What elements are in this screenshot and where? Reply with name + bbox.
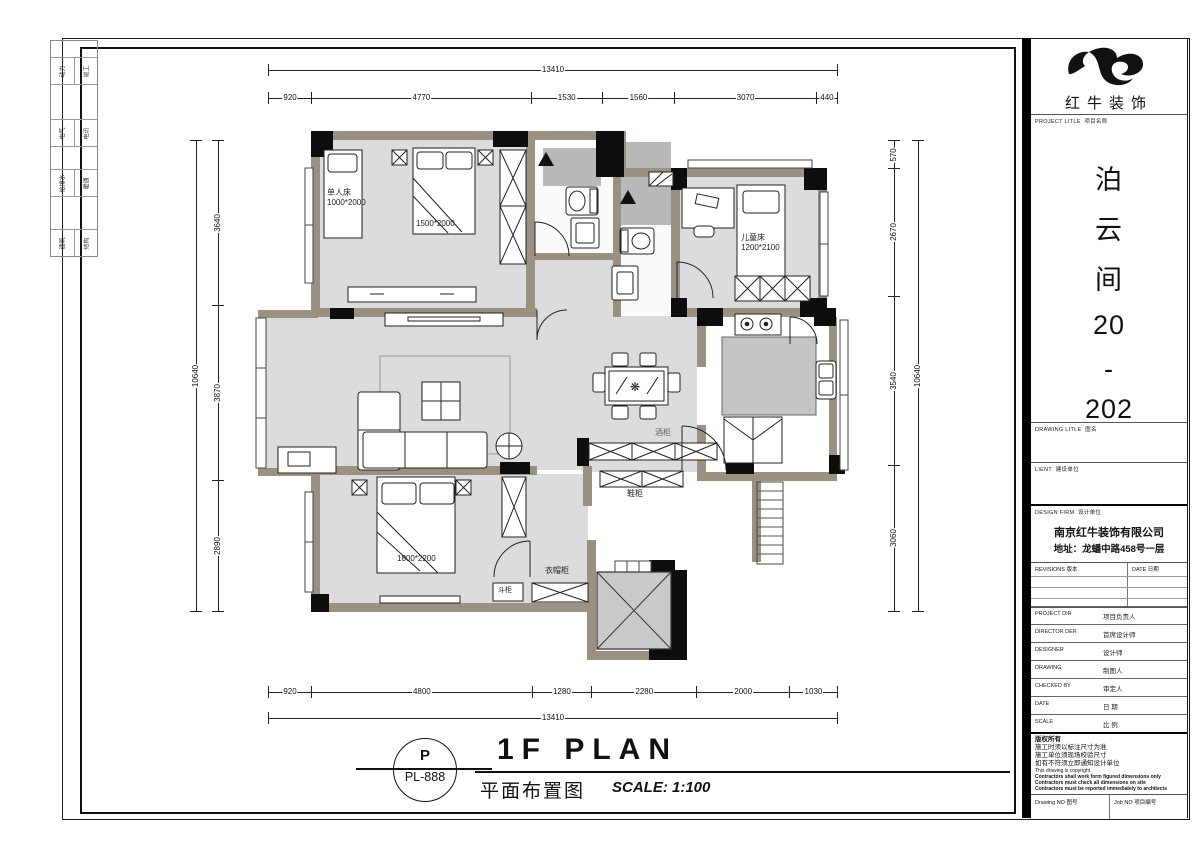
titleblock-row: DIRECTOR DER首席设计师	[1031, 624, 1187, 643]
tv	[408, 317, 480, 321]
dim-top-total: 13410	[268, 64, 838, 76]
dim-bottom-total: 13410	[268, 712, 838, 724]
drawing-no-label: Drawing NO 图号	[1035, 798, 1078, 806]
revisions-header: REVISIONS 版本	[1035, 565, 1078, 573]
pillow	[743, 191, 779, 213]
pillow	[446, 152, 472, 169]
cabinet-screen	[288, 452, 310, 466]
pillow	[382, 483, 416, 504]
toilet-tank	[621, 230, 628, 252]
master-bed-size-label: 1800*2200	[397, 554, 436, 564]
revisions-row-line	[1031, 587, 1187, 588]
divider	[1031, 462, 1187, 463]
dimension-segment: 3640	[212, 140, 224, 305]
dimension-segment: 1530	[531, 92, 602, 104]
dining-chair	[640, 406, 656, 419]
titleblock-row: DESIGNER设计师	[1031, 642, 1187, 661]
titleblock-row: CHECKED BY审定人	[1031, 678, 1187, 697]
sheet-title-zh: 平面布置图	[480, 776, 585, 803]
logo-text: 红牛装饰	[1031, 92, 1187, 113]
title-underline	[475, 771, 1010, 773]
divider	[1031, 422, 1187, 423]
chandelier-icon: ❋	[630, 380, 640, 394]
copyright-line: 如有不符须立即通知设计单位	[1035, 760, 1183, 768]
toilet-bowl	[632, 233, 650, 249]
design-firm-address: 地址：龙蟠中路458号一层	[1031, 541, 1187, 555]
dining-chair	[640, 353, 656, 366]
titleblock-row: SCALE比 例	[1031, 714, 1187, 733]
sink-basin	[576, 223, 594, 243]
thick-divider	[1031, 732, 1187, 734]
dimension-segment: 440	[816, 92, 838, 104]
dimension-segment: 570	[888, 140, 900, 168]
pillow	[420, 483, 454, 504]
sink-basin	[617, 272, 633, 294]
dining-chair	[612, 353, 628, 366]
dimension-segment: 3540	[888, 296, 900, 465]
thick-divider	[1031, 504, 1187, 506]
dim-right-total: 10640	[912, 140, 924, 612]
copyright-line: 施工时须以标注尺寸为准	[1035, 744, 1183, 752]
dimension-segment: 3870	[212, 305, 224, 480]
project-name-char: 泊	[1031, 158, 1187, 197]
dining-chair	[668, 373, 680, 392]
dim-left-total: 10640	[190, 140, 202, 612]
project-title-caption: PROJECT LITLE 项目名称	[1035, 117, 1108, 125]
job-no-label: Job NO 项目编号	[1114, 798, 1156, 806]
desk	[682, 188, 734, 228]
revisions-row-line	[1031, 598, 1187, 599]
title-block: 红牛装饰 PROJECT LITLE 项目名称 泊 云 间 20 - 202 D…	[1031, 38, 1188, 818]
pillow	[328, 154, 357, 172]
revisions-table: REVISIONS 版本 DATE 日期	[1031, 562, 1187, 608]
dim-right-chain: 570267035403060	[888, 140, 900, 612]
toilet-tank	[590, 189, 597, 213]
project-name-char: 间	[1031, 258, 1187, 297]
pillow	[417, 152, 443, 169]
bubble-divider-line	[356, 768, 492, 770]
sheet-scale: SCALE: 1:100	[612, 779, 710, 796]
bubble-code-bottom: PL-888	[394, 770, 456, 784]
dimension-segment: 920	[268, 686, 311, 698]
single-bed-label: 单人床1000*2000	[327, 188, 366, 207]
dimension-segment: 13410	[268, 712, 838, 724]
dimension-segment: 2670	[888, 168, 900, 296]
elevator-shaft	[597, 572, 671, 649]
wine-cabinet-label: 酒柜	[655, 428, 671, 438]
chest-cabinet-label: 斗柜	[498, 587, 512, 595]
dining-chair	[612, 406, 628, 419]
cloak-cabinet-label: 衣帽柜	[545, 566, 569, 576]
project-name-char: 202	[1031, 394, 1187, 425]
project-name-char: -	[1031, 354, 1187, 385]
dimension-segment: 3060	[888, 465, 900, 612]
dimension-segment: 4770	[311, 92, 531, 104]
copyright-block: 版权所有 施工时须以标注尺寸为准 施工单位须现场校验尺寸 如有不符须立即通知设计…	[1035, 736, 1183, 792]
double-bed-size-label: 1500*2000	[416, 219, 455, 229]
project-name-char: 云	[1031, 208, 1187, 247]
dimension-segment: 3070	[674, 92, 816, 104]
desk-chair	[694, 226, 714, 237]
dimension-segment: 10640	[190, 140, 202, 612]
bubble-code-top: P	[394, 747, 456, 764]
dimension-segment: 4800	[311, 686, 532, 698]
divider	[1031, 114, 1187, 115]
toilet-bowl	[569, 191, 585, 211]
dimension-segment: 1280	[532, 686, 592, 698]
kitchen-island	[722, 337, 816, 415]
dimension-segment: 10640	[912, 140, 924, 612]
date-header: DATE 日期	[1132, 565, 1159, 573]
titleblock-row: PROJECT DIR项目负责人	[1031, 606, 1187, 625]
bench	[348, 287, 476, 302]
dimension-segment: 2280	[591, 686, 696, 698]
dimension-segment: 920	[268, 92, 311, 104]
sofa	[363, 432, 487, 468]
dimension-segment: 2000	[696, 686, 788, 698]
number-row: Drawing NO 图号 Job NO 项目编号	[1031, 794, 1187, 819]
dimension-segment: 1560	[602, 92, 674, 104]
kids-bed-label: 儿童床1200*2100	[741, 233, 780, 252]
number-col-divider	[1109, 795, 1110, 819]
dimension-segment: 13410	[268, 64, 838, 76]
dimension-segment: 2890	[212, 480, 224, 612]
drawing-sheet: { "brand": { "logo_name": "redbull-swoos…	[0, 0, 1200, 848]
copyright-line-en: Contractors must be reported immediately…	[1035, 786, 1183, 792]
dim-top-chain: 9204770153015603070440	[268, 92, 838, 104]
redbull-logo-icon	[1059, 44, 1159, 96]
design-firm-name: 南京红牛装饰有限公司	[1031, 524, 1187, 540]
copyright-line: 版权所有	[1035, 736, 1183, 744]
drawing-number-bubble: P PL-888	[393, 738, 457, 802]
titleblock-row: DRAWING制图人	[1031, 660, 1187, 679]
drawing-title-caption: DRAWING LITLE 图名	[1035, 425, 1097, 433]
dining-chair	[593, 373, 605, 392]
dimension-segment: 1030	[789, 686, 838, 698]
bench	[380, 596, 460, 603]
dim-bottom-chain: 92048001280228020001030	[268, 686, 838, 698]
copyright-line: 施工单位须现场校验尺寸	[1035, 752, 1183, 760]
project-name-char: 20	[1031, 310, 1187, 341]
sheet-title-en: 1F PLAN	[497, 733, 678, 767]
design-firm-caption: DESIGN FIRM 设计单位	[1035, 508, 1101, 516]
dim-left-chain: 364038702890	[212, 140, 224, 612]
revisions-col-divider	[1127, 563, 1128, 607]
titleblock-row: DATE日 期	[1031, 696, 1187, 715]
shoe-cabinet-label: 鞋柜	[627, 489, 643, 499]
revisions-row-line	[1031, 576, 1187, 577]
client-caption: LIENT 建设单位	[1035, 465, 1079, 473]
